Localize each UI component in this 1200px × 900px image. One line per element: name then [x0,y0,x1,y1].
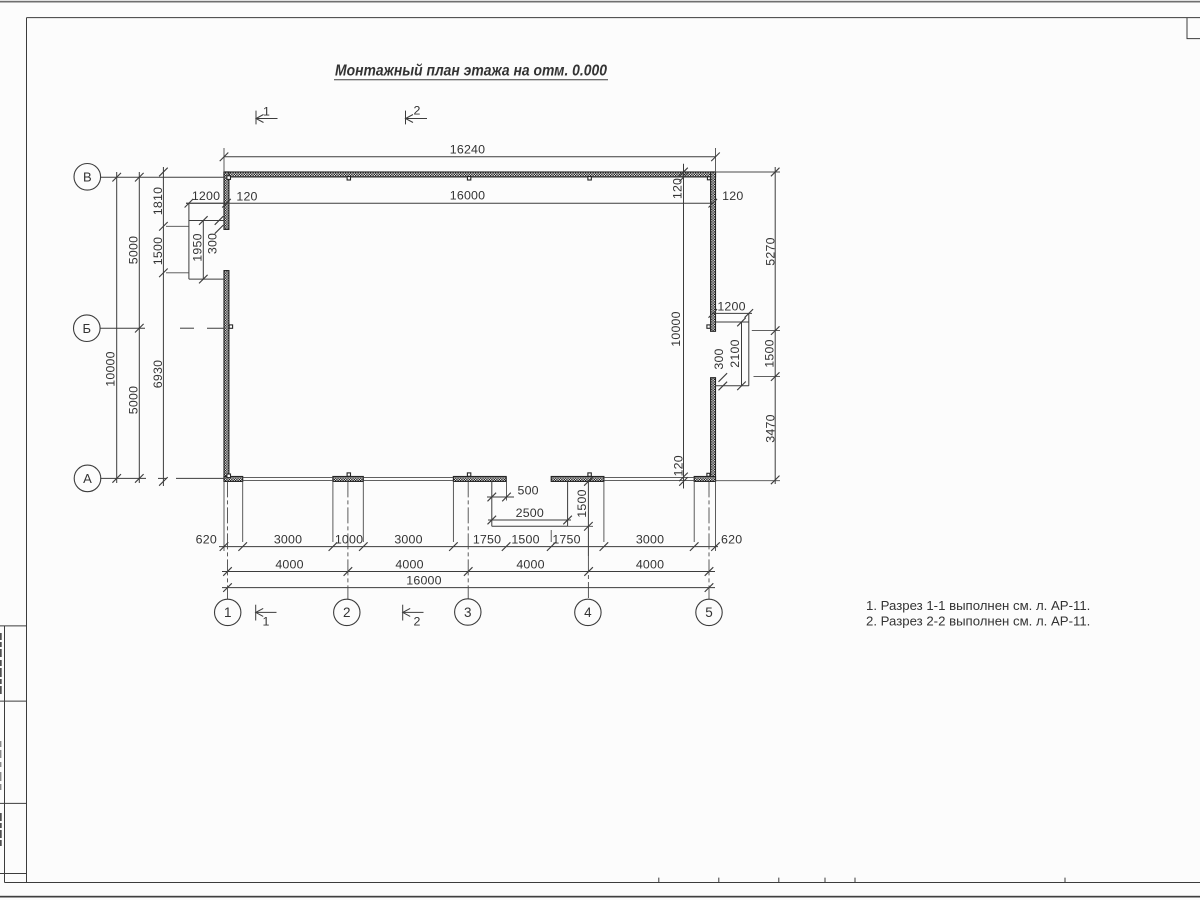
svg-text:16240: 16240 [450,143,485,157]
svg-text:3000: 3000 [394,533,422,547]
svg-text:1500: 1500 [151,237,165,265]
svg-text:1500: 1500 [763,339,777,367]
svg-text:16000: 16000 [406,574,441,588]
svg-text:1000: 1000 [335,533,363,547]
svg-text:300: 300 [205,233,219,254]
svg-text:1200: 1200 [717,299,745,313]
svg-text:3470: 3470 [763,414,777,442]
svg-text:10000: 10000 [669,311,683,346]
svg-text:120: 120 [671,178,685,199]
svg-text:1750: 1750 [552,533,580,547]
svg-text:5: 5 [705,605,713,620]
svg-text:5000: 5000 [126,236,140,264]
svg-text:1500: 1500 [511,533,539,547]
svg-text:1200: 1200 [192,189,220,203]
svg-text:5270: 5270 [763,237,777,265]
svg-text:1: 1 [262,615,269,629]
svg-text:4: 4 [584,605,592,620]
svg-text:1750: 1750 [473,533,501,547]
svg-text:6930: 6930 [151,360,165,388]
svg-text:620: 620 [721,533,742,547]
svg-text:300: 300 [712,348,726,369]
svg-text:2100: 2100 [728,339,742,367]
svg-text:120: 120 [236,190,257,204]
svg-text:2: 2 [343,605,351,620]
svg-text:620: 620 [196,533,217,547]
svg-text:500: 500 [518,484,539,498]
svg-text:4000: 4000 [395,558,423,572]
svg-text:5000: 5000 [126,386,140,414]
svg-text:4000: 4000 [516,558,544,572]
svg-text:1. Разрез 1-1 выполнен см. л.: 1. Разрез 1-1 выполнен см. л. АР-11. [866,598,1090,613]
svg-text:3000: 3000 [274,533,302,547]
svg-text:3: 3 [464,605,472,620]
svg-text:Б: Б [83,321,92,336]
svg-text:2: 2 [413,615,420,629]
svg-text:120: 120 [671,455,685,476]
svg-text:А: А [83,471,92,486]
svg-text:2: 2 [413,104,420,118]
svg-text:4000: 4000 [275,558,303,572]
svg-text:1: 1 [224,605,232,620]
svg-text:1: 1 [263,105,270,119]
svg-text:10000: 10000 [104,351,118,386]
svg-text:3000: 3000 [636,533,664,547]
svg-text:Монтажный план этажа на отм. 0: Монтажный план этажа на отм. 0.000 [335,63,607,80]
svg-text:2500: 2500 [516,506,544,520]
svg-text:1810: 1810 [151,187,165,215]
svg-text:В: В [83,169,92,184]
svg-text:2. Разрез 2-2 выполнен см. л.: 2. Разрез 2-2 выполнен см. л. АР-11. [866,614,1090,629]
svg-text:1500: 1500 [575,489,589,517]
svg-text:120: 120 [722,189,743,203]
svg-text:4000: 4000 [636,558,664,572]
svg-text:1950: 1950 [190,233,204,261]
svg-text:16000: 16000 [450,189,485,203]
